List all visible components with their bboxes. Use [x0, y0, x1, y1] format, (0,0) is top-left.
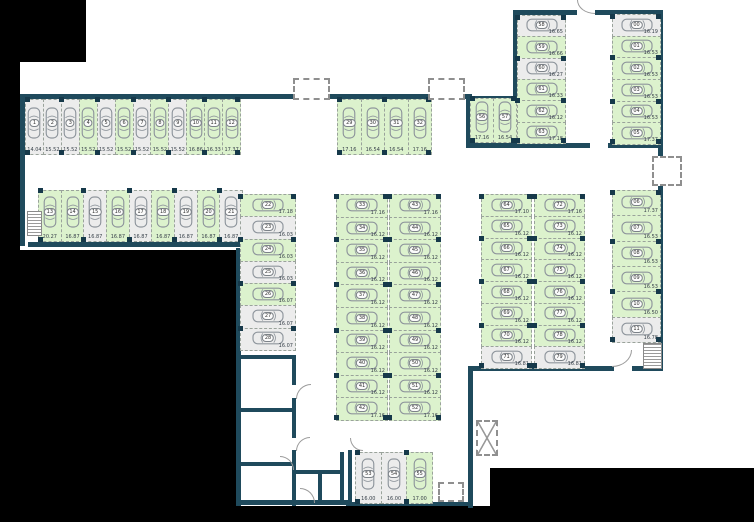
parking-stall-69[interactable]: 6916.12: [481, 303, 532, 326]
parking-stall-35[interactable]: 3516.12: [336, 239, 388, 263]
stall-area-label: 17.16: [568, 209, 582, 215]
pillar: [172, 188, 177, 193]
stall-number: 70: [500, 331, 512, 339]
parking-area-C: 1320.271416.871516.871616.871716.871816.…: [38, 190, 242, 242]
stall-number: 7: [137, 119, 146, 127]
parking-stall-10[interactable]: 1016.86: [186, 99, 205, 155]
pillar: [334, 237, 339, 242]
parking-stall-71[interactable]: 7116.81: [481, 346, 532, 369]
parking-stall-59[interactable]: 5916.66: [517, 36, 566, 58]
pillar: [580, 194, 585, 199]
pillar: [95, 97, 100, 102]
wall: [236, 355, 296, 359]
pillar: [479, 236, 484, 241]
stall-number: 17: [134, 208, 146, 216]
stall-number: 04: [630, 107, 642, 115]
stall-area-label: 16.12: [568, 252, 582, 258]
parking-stall-73[interactable]: 7316.12: [534, 216, 585, 239]
stall-number: 32: [414, 119, 426, 127]
parking-stall-26[interactable]: 2616.07: [240, 283, 296, 306]
parking-stall-31[interactable]: 3116.54: [384, 99, 409, 155]
pillar: [532, 363, 537, 368]
outside-area: [0, 250, 236, 522]
stall-number: 2: [48, 119, 57, 127]
parking-stall-33[interactable]: 3317.16: [336, 194, 388, 218]
stall-number: 21: [225, 208, 237, 216]
parking-stall-56[interactable]: 5617.16: [470, 98, 494, 143]
parking-stall-40[interactable]: 4016.12: [336, 352, 388, 376]
stall-number: 18: [157, 208, 169, 216]
parking-stall-7[interactable]: 715.52: [133, 99, 152, 155]
parking-stall-07[interactable]: 0716.53: [612, 215, 661, 241]
parking-stall-78[interactable]: 7816.12: [534, 325, 585, 348]
parking-stall-19[interactable]: 1916.87: [174, 190, 198, 242]
parking-stall-75[interactable]: 7516.12: [534, 259, 585, 282]
parking-stall-68[interactable]: 6816.12: [481, 281, 532, 304]
parking-stall-39[interactable]: 3916.12: [336, 330, 388, 354]
pillar: [479, 194, 484, 199]
pillar: [172, 237, 177, 242]
pillar: [217, 188, 222, 193]
parking-stall-48[interactable]: 4816.12: [389, 307, 441, 331]
parking-stall-55[interactable]: 5517.00: [406, 452, 433, 504]
pillar: [382, 150, 387, 155]
parking-stall-41[interactable]: 4116.12: [336, 375, 388, 399]
pillar: [95, 150, 100, 155]
parking-stall-6[interactable]: 615.52: [115, 99, 134, 155]
pillar: [238, 237, 243, 242]
pillar: [610, 239, 615, 244]
stall-number: 07: [630, 224, 642, 232]
wall: [236, 408, 296, 412]
parking-stall-54[interactable]: 5416.00: [381, 452, 408, 504]
stall-area-label: 16.12: [568, 339, 582, 345]
stall-number: 11: [630, 325, 642, 333]
parking-area-F: 5316.005416.005517.00: [355, 452, 432, 504]
parking-stall-00[interactable]: 0016.19: [612, 14, 661, 37]
parking-stall-65[interactable]: 6516.12: [481, 216, 532, 239]
parking-area-D: 2217.182316.032416.032516.032616.072716.…: [240, 194, 296, 350]
pillar: [238, 194, 243, 199]
stall-area-label: 17.16: [371, 210, 385, 216]
parking-area-H: 5816.655916.666016.276116.336216.126317.…: [517, 15, 566, 143]
pillar: [532, 323, 537, 328]
parking-stall-64[interactable]: 6417.10: [481, 194, 532, 217]
stall-number: 16: [112, 208, 124, 216]
stall-number: 47: [409, 291, 421, 299]
pillar: [387, 328, 392, 333]
stall-number: 14: [66, 208, 78, 216]
pillar: [656, 55, 661, 60]
pillar: [470, 96, 475, 101]
parking-area-B: 2917.163016.543116.543217.16: [337, 99, 431, 155]
parking-stall-76[interactable]: 7616.12: [534, 281, 585, 304]
pillar: [436, 328, 441, 333]
parking-stall-38[interactable]: 3816.12: [336, 307, 388, 331]
stairs-icon: [27, 211, 42, 236]
parking-stall-37[interactable]: 3716.12: [336, 284, 388, 308]
parking-stall-44[interactable]: 4416.12: [389, 217, 441, 241]
parking-area-E1: 3317.163416.123516.123616.123716.123816.…: [336, 194, 388, 420]
stall-area-label: 16.27: [549, 72, 563, 78]
stall-number: 37: [356, 291, 368, 299]
parking-stall-25[interactable]: 2516.03: [240, 261, 296, 284]
parking-stall-27[interactable]: 2716.07: [240, 305, 296, 328]
stall-area-label: 16.87: [130, 234, 152, 240]
stall-number: 69: [500, 309, 512, 317]
stall-number: 9: [173, 119, 182, 127]
pillar: [515, 56, 520, 61]
stall-area-label: 15.52: [98, 147, 115, 153]
stall-area-label: 16.87: [62, 234, 84, 240]
stall-area-label: 16.12: [515, 339, 529, 345]
stall-number: 25: [262, 268, 274, 276]
stall-area-label: 15.52: [62, 147, 79, 153]
pillar: [436, 373, 441, 378]
pillar: [580, 236, 585, 241]
stall-number: 51: [409, 382, 421, 390]
stall-number: 20: [202, 208, 214, 216]
ventilation-shaft: [428, 78, 465, 100]
parking-stall-58[interactable]: 5816.65: [517, 15, 566, 37]
stall-number: 49: [409, 336, 421, 344]
parking-stall-1[interactable]: 114.04: [25, 99, 44, 155]
parking-area-J: 0617.370716.530816.530916.531016.501116.…: [612, 190, 661, 342]
pillar: [656, 99, 661, 104]
pillar: [217, 237, 222, 242]
pillar: [238, 326, 243, 331]
pillar: [561, 98, 566, 103]
parking-stall-79[interactable]: 7916.81: [534, 346, 585, 369]
elevator-shaft: [476, 420, 498, 456]
parking-stall-20[interactable]: 2016.87: [197, 190, 221, 242]
door-arc: [300, 488, 315, 503]
pillar: [426, 150, 431, 155]
parking-stall-18[interactable]: 1816.87: [151, 190, 175, 242]
stall-number: 65: [500, 222, 512, 230]
pillar: [337, 150, 342, 155]
parking-stall-70[interactable]: 7016.12: [481, 325, 532, 348]
pillar: [656, 139, 661, 144]
parking-stall-28[interactable]: 2816.07: [240, 328, 296, 351]
stall-number: 8: [155, 119, 164, 127]
pillar: [532, 279, 537, 284]
parking-stall-49[interactable]: 4916.12: [389, 330, 441, 354]
parking-stall-67[interactable]: 6716.12: [481, 259, 532, 282]
parking-stall-47[interactable]: 4716.12: [389, 284, 441, 308]
pillar: [202, 97, 207, 102]
pillar: [610, 14, 615, 19]
pillar: [656, 14, 661, 19]
wall: [292, 355, 296, 385]
stall-area-label: 16.07: [279, 343, 293, 349]
stall-area-label: 16.12: [371, 255, 385, 261]
pillar: [610, 289, 615, 294]
pillar: [25, 97, 30, 102]
pillar: [59, 150, 64, 155]
stall-number: 61: [535, 85, 547, 93]
stall-number: 43: [409, 201, 421, 209]
parking-stall-34[interactable]: 3416.12: [336, 217, 388, 241]
pillar: [515, 138, 520, 143]
pillar: [610, 55, 615, 60]
stall-area-label: 16.54: [362, 147, 385, 153]
stall-number: 72: [553, 201, 565, 209]
parking-stall-9[interactable]: 915.52: [168, 99, 187, 155]
pillar: [131, 97, 136, 102]
stall-area-label: 16.12: [424, 390, 438, 396]
parking-stall-32[interactable]: 3217.16: [408, 99, 433, 155]
parking-stall-2[interactable]: 215.52: [43, 99, 62, 155]
parking-stall-46[interactable]: 4616.12: [389, 262, 441, 286]
stall-area-label: 16.87: [198, 234, 220, 240]
stall-number: 11: [207, 119, 219, 127]
stall-number: 54: [388, 470, 400, 478]
stall-number: 68: [500, 288, 512, 296]
parking-stall-4[interactable]: 415.52: [79, 99, 98, 155]
parking-stall-02[interactable]: 0216.53: [612, 57, 661, 80]
stall-number: 46: [409, 269, 421, 277]
parking-stall-17[interactable]: 1716.87: [129, 190, 153, 242]
parking-stall-52[interactable]: 5217.16: [389, 397, 441, 421]
parking-stall-50[interactable]: 5016.12: [389, 352, 441, 376]
pillar: [387, 194, 392, 199]
outside-area: [0, 0, 86, 62]
parking-stall-30[interactable]: 3016.54: [361, 99, 386, 155]
pillar: [610, 190, 615, 195]
stall-area-label: 16.12: [515, 296, 529, 302]
pillar: [334, 328, 339, 333]
stall-number: 28: [262, 334, 274, 342]
parking-floor-plan: 114.04215.52315.52415.52515.52615.52715.…: [0, 0, 754, 522]
stall-number: 01: [630, 42, 642, 50]
stall-number: 40: [356, 359, 368, 367]
pillar: [479, 279, 484, 284]
parking-stall-3[interactable]: 315.52: [61, 99, 80, 155]
pillar: [387, 415, 392, 420]
door-arc: [296, 437, 310, 451]
pillar: [479, 363, 484, 368]
parking-stall-5[interactable]: 515.52: [97, 99, 116, 155]
parking-stall-11[interactable]: 1116.78: [612, 317, 661, 343]
pillar: [561, 15, 566, 20]
pillar: [436, 415, 441, 420]
stall-number: 23: [262, 223, 274, 231]
stall-area-label: 16.33: [205, 147, 222, 153]
stall-area-label: 17.37: [644, 208, 658, 214]
stall-number: 34: [356, 224, 368, 232]
stall-area-label: 16.87: [152, 234, 174, 240]
stall-area-label: 16.12: [371, 390, 385, 396]
pillar: [515, 98, 520, 103]
parking-stall-74[interactable]: 7416.12: [534, 238, 585, 261]
stall-area-label: 16.19: [644, 29, 658, 35]
pillar: [387, 237, 392, 242]
parking-area-A: 114.04215.52315.52415.52515.52615.52715.…: [25, 99, 240, 155]
pillar: [81, 188, 86, 193]
pillar: [355, 499, 360, 504]
stall-number: 74: [553, 244, 565, 252]
pillar: [656, 239, 661, 244]
stall-area-label: 16.87: [84, 234, 106, 240]
pillar: [404, 450, 409, 455]
parking-stall-29[interactable]: 2917.16: [337, 99, 362, 155]
parking-stall-05[interactable]: 0517.37: [612, 122, 661, 145]
pillar: [238, 281, 243, 286]
pillar: [515, 15, 520, 20]
stall-area-label: 16.12: [371, 345, 385, 351]
stall-number: 31: [390, 119, 402, 127]
parking-stall-14[interactable]: 1416.87: [61, 190, 85, 242]
parking-stall-53[interactable]: 5316.00: [355, 452, 382, 504]
wall: [28, 242, 244, 247]
stall-area-label: 16.12: [549, 115, 563, 121]
parking-stall-06[interactable]: 0617.37: [612, 190, 661, 216]
parking-stall-24[interactable]: 2416.03: [240, 239, 296, 262]
stall-area-label: 15.52: [134, 147, 151, 153]
parking-stall-04[interactable]: 0416.53: [612, 101, 661, 124]
stall-number: 67: [500, 266, 512, 274]
stall-area-label: 16.65: [549, 29, 563, 35]
pillar: [404, 499, 409, 504]
stall-number: 50: [409, 359, 421, 367]
pillar: [610, 99, 615, 104]
stall-number: 38: [356, 314, 368, 322]
pillar: [436, 282, 441, 287]
ventilation-shaft: [438, 482, 464, 502]
pillar: [291, 237, 296, 242]
stall-area-label: 16.87: [107, 234, 129, 240]
stall-area-label: 16.12: [371, 300, 385, 306]
pillar: [291, 194, 296, 199]
parking-stall-77[interactable]: 7716.12: [534, 303, 585, 326]
parking-stall-09[interactable]: 0916.53: [612, 266, 661, 292]
parking-stall-01[interactable]: 0116.53: [612, 36, 661, 59]
stall-number: 3: [66, 119, 75, 127]
parking-stall-51[interactable]: 5116.12: [389, 375, 441, 399]
parking-stall-60[interactable]: 6016.27: [517, 58, 566, 80]
stall-number: 35: [356, 246, 368, 254]
parking-stall-62[interactable]: 6216.12: [517, 100, 566, 122]
stall-number: 05: [630, 129, 642, 137]
stall-number: 44: [409, 224, 421, 232]
wall: [318, 470, 322, 504]
stall-number: 24: [262, 245, 274, 253]
stall-number: 53: [362, 470, 374, 478]
pillar: [387, 373, 392, 378]
stall-number: 79: [553, 353, 565, 361]
parking-stall-11[interactable]: 1116.33: [204, 99, 223, 155]
stall-number: 22: [262, 201, 274, 209]
parking-area-L: 7217.167316.127416.127516.127616.127716.…: [534, 194, 585, 368]
pillar: [656, 289, 661, 294]
stall-number: 48: [409, 314, 421, 322]
stall-area-label: 16.03: [279, 254, 293, 260]
stall-number: 29: [343, 119, 355, 127]
stall-number: 27: [262, 312, 274, 320]
stall-number: 57: [499, 113, 511, 121]
stall-number: 63: [535, 128, 547, 136]
parking-stall-10[interactable]: 1016.50: [612, 291, 661, 317]
pillar: [532, 194, 537, 199]
stall-number: 56: [476, 113, 488, 121]
parking-stall-03[interactable]: 0316.53: [612, 79, 661, 102]
pillar: [59, 97, 64, 102]
stall-area-label: 16.53: [644, 115, 658, 121]
pillar: [580, 363, 585, 368]
pillar: [580, 279, 585, 284]
parking-stall-72[interactable]: 7217.16: [534, 194, 585, 217]
pillar: [166, 97, 171, 102]
wall: [468, 366, 473, 508]
pillar: [334, 194, 339, 199]
stall-number: 39: [356, 336, 368, 344]
pillar: [131, 150, 136, 155]
ventilation-shaft: [293, 78, 330, 100]
pillar: [610, 139, 615, 144]
parking-stall-43[interactable]: 4317.16: [389, 194, 441, 218]
pillar: [25, 150, 30, 155]
parking-stall-45[interactable]: 4516.12: [389, 239, 441, 263]
wall: [292, 408, 296, 438]
stall-number: 64: [500, 201, 512, 209]
stall-area-label: 16.12: [424, 345, 438, 351]
stall-area-label: 17.10: [515, 209, 529, 215]
parking-stall-42[interactable]: 4217.16: [336, 397, 388, 421]
stall-number: 71: [500, 353, 512, 361]
stall-number: 52: [409, 404, 421, 412]
stall-number: 76: [553, 288, 565, 296]
stall-number: 10: [190, 119, 202, 127]
stall-number: 13: [44, 208, 56, 216]
stall-area-label: 17.18: [279, 209, 293, 215]
pillar: [436, 194, 441, 199]
outside-area: [0, 62, 20, 252]
stall-number: 59: [535, 43, 547, 51]
parking-stall-57[interactable]: 5716.54: [493, 98, 517, 143]
pillar: [479, 323, 484, 328]
pillar: [561, 56, 566, 61]
parking-stall-36[interactable]: 3616.12: [336, 262, 388, 286]
parking-area-I: 0016.190116.530216.530316.530416.530517.…: [612, 14, 661, 144]
pillar: [382, 97, 387, 102]
parking-stall-63[interactable]: 6317.18: [517, 122, 566, 144]
parking-stall-22[interactable]: 2217.18: [240, 194, 296, 217]
stall-area-label: 16.12: [424, 255, 438, 261]
stall-number: 36: [356, 269, 368, 277]
stall-number: 33: [356, 201, 368, 209]
pillar: [532, 236, 537, 241]
wall: [348, 450, 352, 506]
stall-number: 78: [553, 331, 565, 339]
stall-area-label: 17.00: [407, 496, 432, 502]
parking-stall-61[interactable]: 6116.33: [517, 79, 566, 101]
door-arc: [577, 0, 595, 14]
parking-stall-16[interactable]: 1616.87: [106, 190, 130, 242]
stall-number: 6: [119, 119, 128, 127]
parking-stall-08[interactable]: 0816.53: [612, 241, 661, 267]
pillar: [436, 237, 441, 242]
stall-number: 26: [262, 290, 274, 298]
stall-number: 19: [180, 208, 192, 216]
parking-stall-66[interactable]: 6616.12: [481, 238, 532, 261]
pillar: [337, 97, 342, 102]
parking-stall-15[interactable]: 1516.87: [83, 190, 107, 242]
parking-stall-12[interactable]: 1217.37: [222, 99, 241, 155]
parking-stall-8[interactable]: 815.52: [150, 99, 169, 155]
parking-stall-23[interactable]: 2316.03: [240, 216, 296, 239]
pillar: [334, 282, 339, 287]
